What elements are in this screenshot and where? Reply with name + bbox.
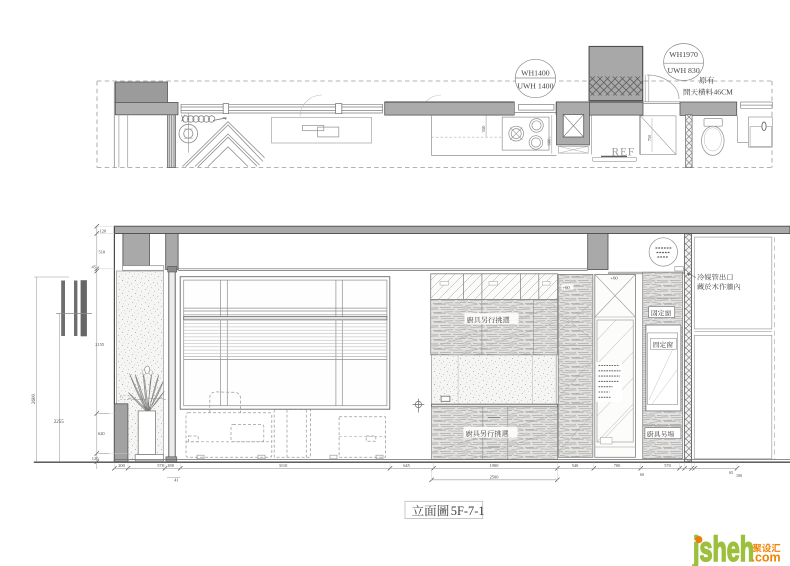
svg-text:120: 120 [100,229,107,234]
svg-text:41: 41 [174,478,178,483]
svg-text:46CM: 46CM [714,87,734,96]
svg-text:200: 200 [118,463,125,468]
svg-text:3110: 3110 [279,463,288,468]
svg-text:350: 350 [481,125,486,133]
svg-text:750: 750 [647,134,652,141]
svg-text:.com: .com [752,551,781,565]
svg-text:65: 65 [729,470,733,475]
svg-text:700: 700 [614,463,621,468]
svg-text:WH1970: WH1970 [669,50,698,59]
svg-text:600: 600 [547,138,552,146]
svg-text:WH1400: WH1400 [521,69,550,78]
svg-text:1900: 1900 [490,463,500,468]
svg-text:2255: 2255 [54,420,65,425]
svg-text:60: 60 [640,472,644,477]
svg-text:jsheh: jsheh [692,530,754,566]
svg-text:540: 540 [572,463,579,468]
svg-text:2600: 2600 [32,394,37,405]
svg-text:+60: +60 [611,276,619,281]
svg-text:510: 510 [99,250,106,255]
svg-text:620: 620 [98,431,105,436]
svg-text:645: 645 [403,463,410,468]
svg-text:2500: 2500 [490,474,500,479]
svg-text:UWH 1400: UWH 1400 [517,82,553,91]
svg-text:100: 100 [736,473,742,478]
svg-text:120: 120 [92,456,99,461]
svg-text:UWH 830: UWH 830 [667,66,699,75]
svg-text:578: 578 [157,463,164,468]
svg-text:570: 570 [664,463,671,468]
svg-text:188: 188 [167,463,174,468]
svg-text:2155: 2155 [95,342,105,347]
svg-text:+60: +60 [563,285,571,290]
svg-text:5F-7-1: 5F-7-1 [451,504,485,518]
